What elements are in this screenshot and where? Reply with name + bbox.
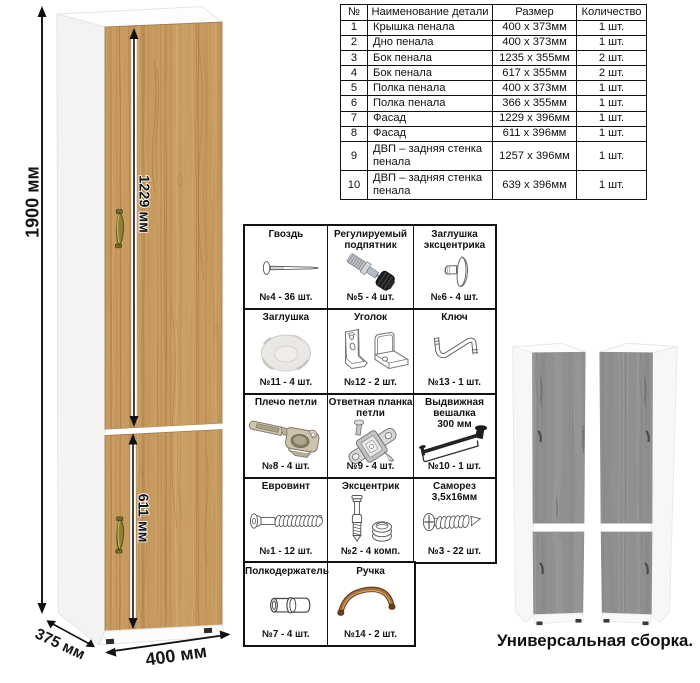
svg-text:1229 мм: 1229 мм: [136, 175, 152, 233]
svg-text:1900 мм: 1900 мм: [23, 166, 43, 238]
svg-text:611 мм: 611 мм: [135, 494, 151, 543]
svg-text:375 мм: 375 мм: [32, 625, 87, 663]
